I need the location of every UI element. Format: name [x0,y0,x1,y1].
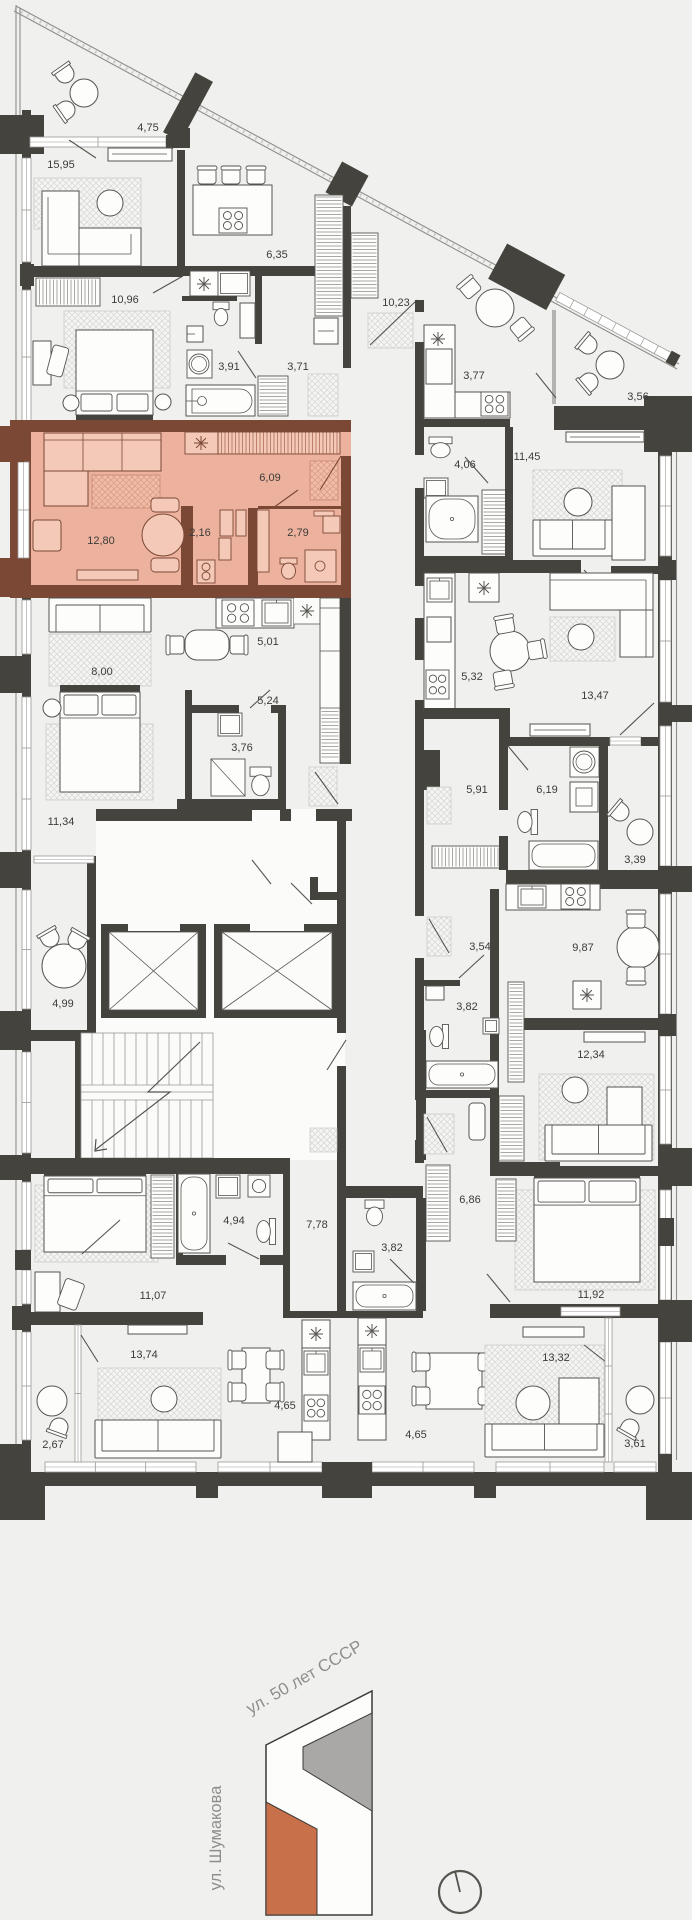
svg-text:3,91: 3,91 [218,361,239,373]
svg-text:2,16: 2,16 [189,527,210,539]
svg-text:2,67: 2,67 [42,1439,63,1451]
svg-text:12,80: 12,80 [87,535,115,547]
svg-text:4,65: 4,65 [274,1400,295,1412]
svg-text:11,92: 11,92 [578,1289,605,1301]
svg-text:4,65: 4,65 [405,1429,426,1441]
svg-text:4,94: 4,94 [223,1215,244,1227]
svg-text:11,34: 11,34 [48,816,75,828]
svg-text:4,75: 4,75 [137,122,158,134]
svg-text:13,32: 13,32 [542,1352,570,1364]
svg-text:6,35: 6,35 [266,249,287,261]
svg-text:5,32: 5,32 [461,671,482,683]
svg-text:6,86: 6,86 [459,1194,480,1206]
svg-text:9,87: 9,87 [572,942,593,954]
svg-text:13,47: 13,47 [581,690,609,702]
svg-text:13,74: 13,74 [130,1349,158,1361]
svg-text:6,19: 6,19 [536,784,557,796]
svg-text:8,00: 8,00 [91,666,112,678]
svg-text:3,56: 3,56 [627,391,648,403]
svg-text:6,09: 6,09 [259,472,280,484]
svg-text:3,77: 3,77 [463,370,484,382]
svg-text:3,54: 3,54 [469,941,490,953]
svg-text:2,79: 2,79 [287,527,308,539]
svg-text:5,01: 5,01 [257,636,278,648]
svg-text:3,39: 3,39 [624,854,645,866]
svg-text:11,45: 11,45 [514,451,541,463]
svg-text:11,07: 11,07 [140,1290,167,1302]
svg-text:10,23: 10,23 [382,297,410,309]
svg-text:3,61: 3,61 [624,1438,645,1450]
svg-text:7,78: 7,78 [306,1219,327,1231]
svg-text:10,96: 10,96 [111,294,139,306]
svg-text:ул. Шумакова: ул. Шумакова [207,1785,225,1891]
svg-text:5,91: 5,91 [466,784,487,796]
svg-text:15,95: 15,95 [47,159,75,171]
svg-text:3,71: 3,71 [287,361,308,373]
svg-text:3,76: 3,76 [231,742,252,754]
svg-text:3,82: 3,82 [381,1242,402,1254]
svg-text:3,82: 3,82 [456,1001,477,1013]
svg-text:12,34: 12,34 [577,1049,605,1061]
svg-text:4,99: 4,99 [52,998,73,1010]
